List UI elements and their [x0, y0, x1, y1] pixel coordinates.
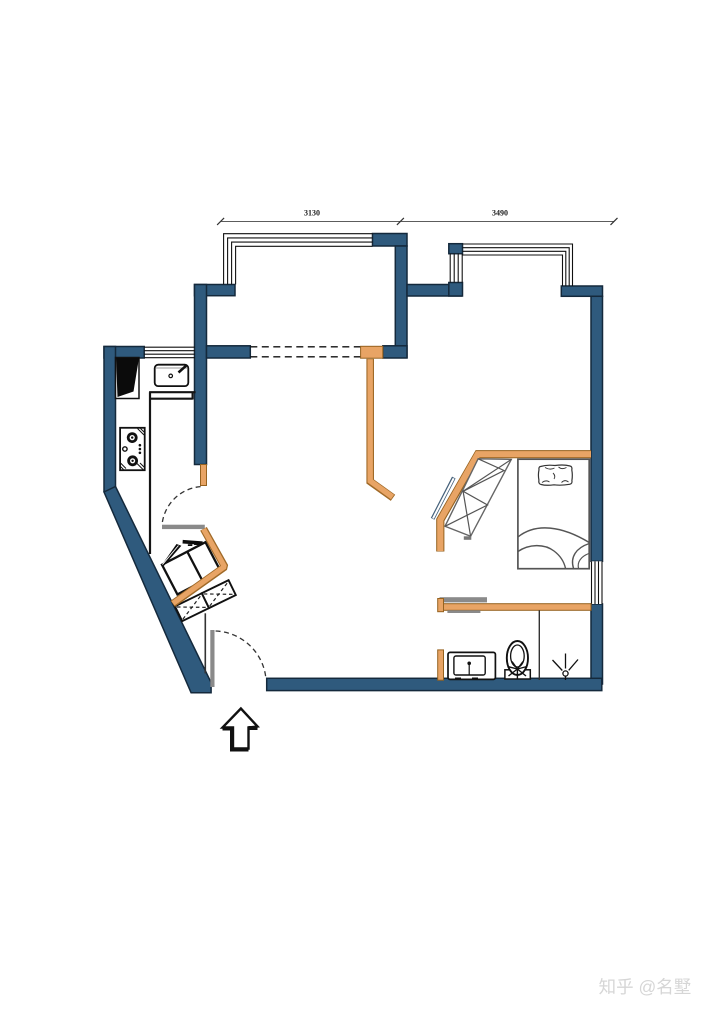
svg-text:3130: 3130: [304, 209, 320, 218]
svg-text:3490: 3490: [492, 209, 508, 218]
svg-text:知乎 @名墅: 知乎 @名墅: [599, 977, 692, 997]
